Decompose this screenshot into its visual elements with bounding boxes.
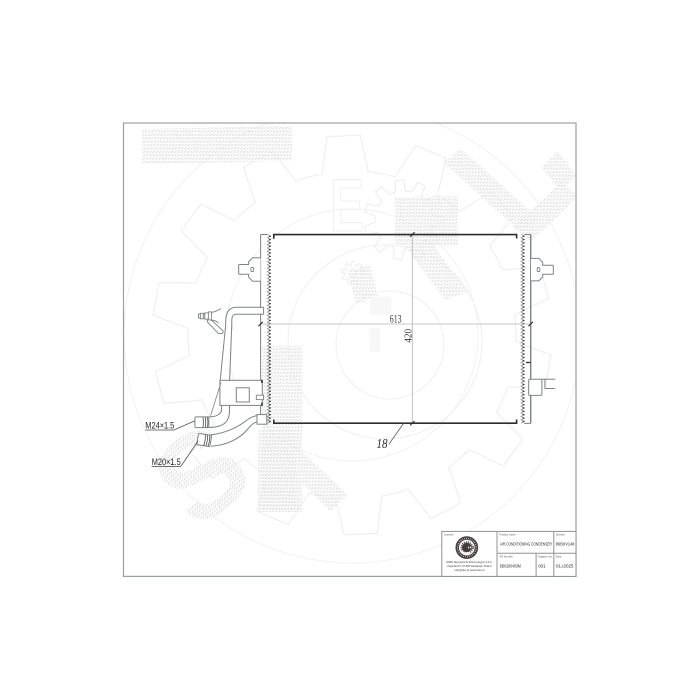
svg-text:18: 18 <box>377 437 388 452</box>
svg-text:M20×1.5: M20×1.5 <box>152 456 181 467</box>
svg-text:AIR CONDITIONING CONDENSER: AIR CONDITIONING CONDENSER <box>500 541 552 546</box>
svg-text:Product name: Product name <box>499 533 516 537</box>
svg-text:OE Number: OE Number <box>499 554 513 558</box>
svg-text:420: 420 <box>402 328 414 342</box>
svg-text:001: 001 <box>538 563 546 568</box>
svg-text:8D0260403M: 8D0260403M <box>500 563 521 568</box>
svg-text:M24×1.5: M24×1.5 <box>145 420 174 431</box>
svg-text:Symbol: Symbol <box>556 533 565 537</box>
svg-text:86BXV148: 86BXV148 <box>556 541 575 546</box>
svg-text:01.I2025: 01.I2025 <box>556 563 574 568</box>
svg-text:ESEN Wyposażenie Motoryzacyjne: ESEN Wyposażenie Motoryzacyjne S.K.A. <box>446 560 492 564</box>
svg-text:Date: Date <box>556 554 562 558</box>
svg-text:Papieżka 87, 87-800 Włocławek,: Papieżka 87, 87-800 Włocławek, Poland <box>447 564 491 568</box>
svg-text:info@skv.pl www.skv.pl: info@skv.pl www.skv.pl <box>454 568 484 572</box>
svg-text:Importer: Importer <box>444 533 454 537</box>
svg-text:Diagram No.: Diagram No. <box>538 554 553 558</box>
svg-text:613: 613 <box>390 312 402 326</box>
